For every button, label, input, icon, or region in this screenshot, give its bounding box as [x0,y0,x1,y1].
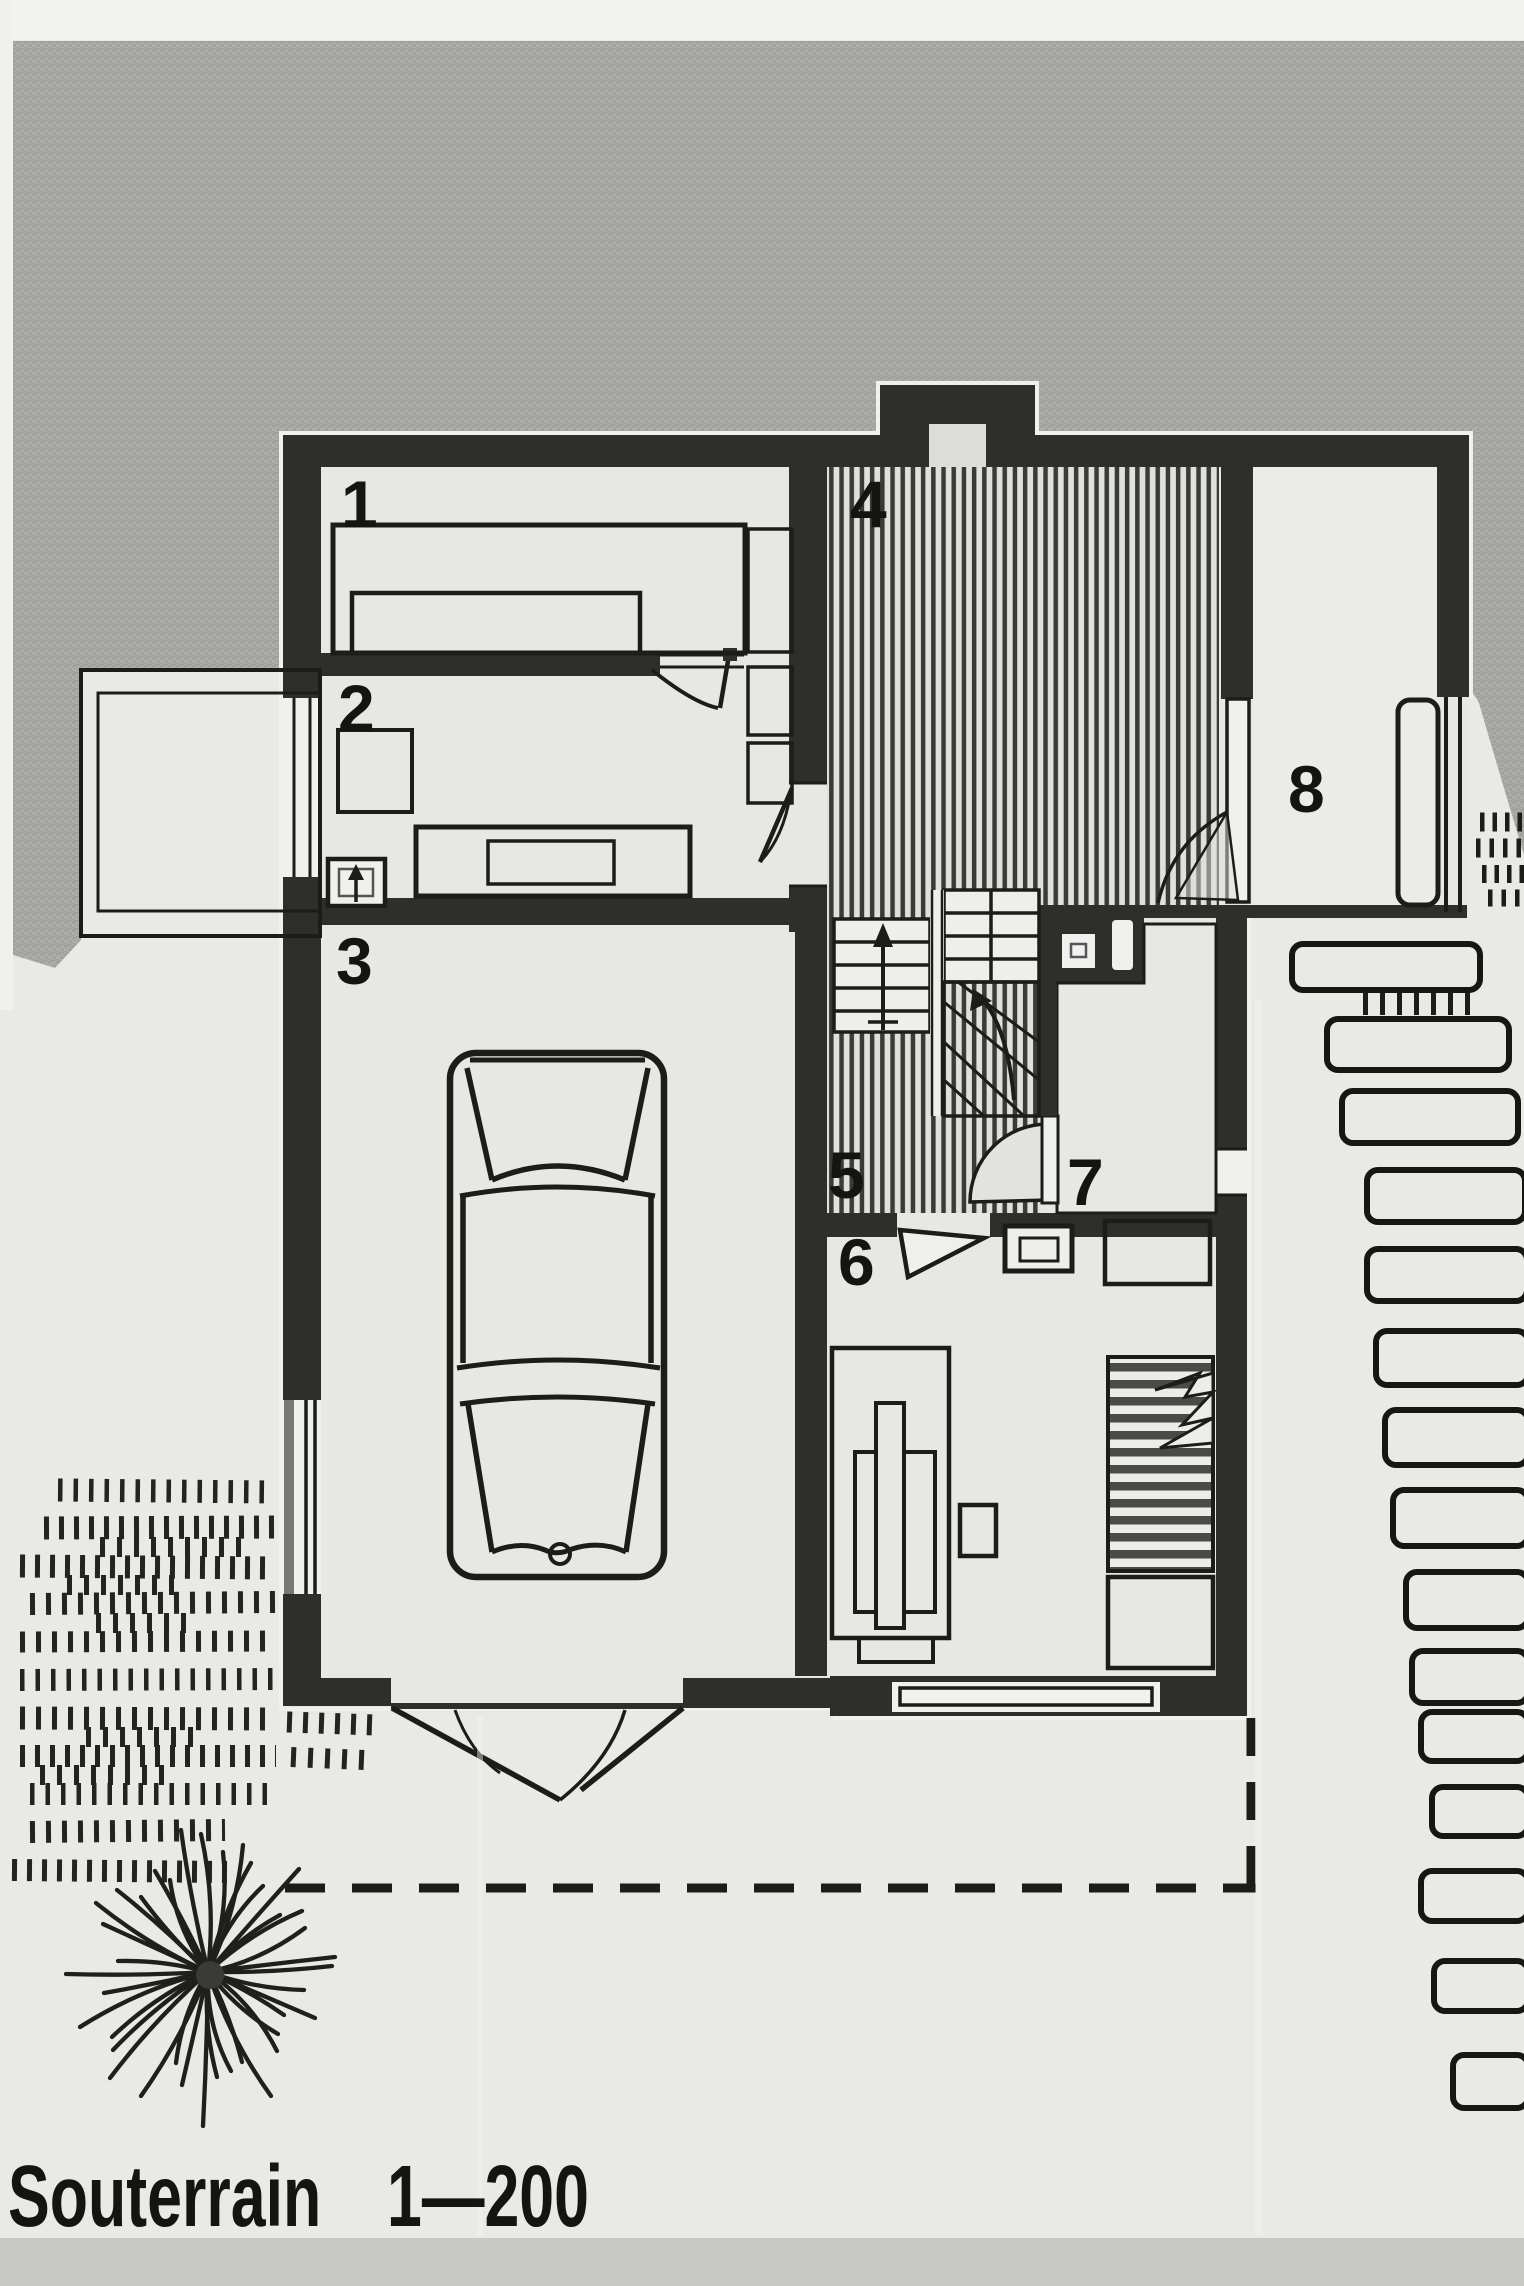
svg-text:3: 3 [336,924,373,998]
svg-text:1: 1 [341,467,378,541]
svg-text:Souterrain: Souterrain [8,2148,321,2246]
svg-text:8: 8 [1288,752,1325,826]
svg-text:1—200: 1—200 [387,2148,589,2246]
svg-text:6: 6 [838,1225,875,1299]
svg-text:7: 7 [1067,1145,1104,1219]
svg-text:4: 4 [850,467,887,541]
svg-text:5: 5 [828,1138,865,1212]
svg-text:2: 2 [338,671,375,745]
